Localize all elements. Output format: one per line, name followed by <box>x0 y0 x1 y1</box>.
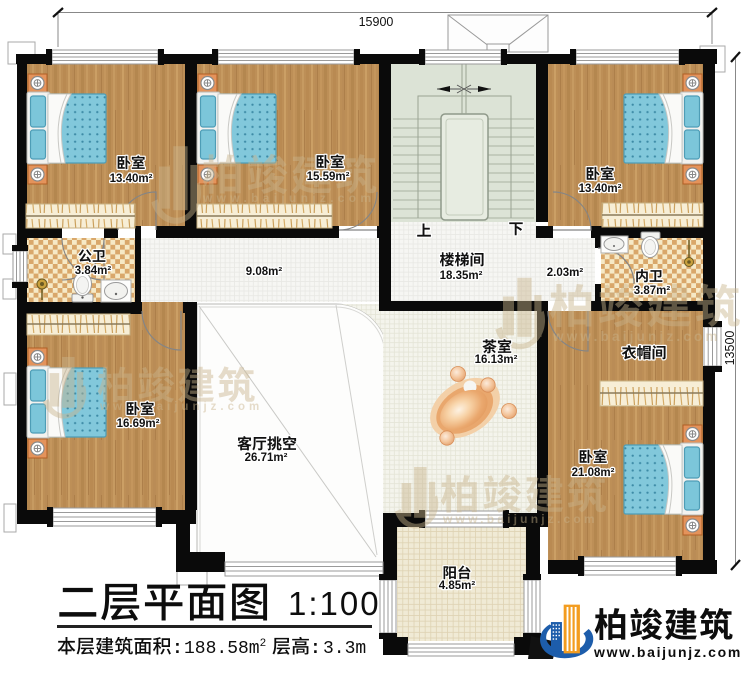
svg-text:21.08m²: 21.08m² <box>572 467 615 479</box>
svg-text:9.08m²: 9.08m² <box>246 266 283 278</box>
svg-text:26.71m²: 26.71m² <box>245 452 288 464</box>
svg-text:16.13m²: 16.13m² <box>475 354 518 366</box>
svg-text:15900: 15900 <box>359 15 394 29</box>
svg-text:www.baijunjz.com: www.baijunjz.com <box>99 401 263 413</box>
svg-text:www.baijunjz.com: www.baijunjz.com <box>202 191 375 205</box>
svg-text:15.59m²: 15.59m² <box>307 171 350 183</box>
svg-text:3.87m²: 3.87m² <box>634 285 671 297</box>
svg-text:1:100: 1:100 <box>288 585 381 622</box>
svg-text:13500: 13500 <box>723 331 737 366</box>
svg-text:2.03m²: 2.03m² <box>547 267 584 279</box>
svg-text:13.40m²: 13.40m² <box>110 173 153 185</box>
svg-text:13.40m²: 13.40m² <box>579 183 622 195</box>
svg-text::: : <box>310 639 321 659</box>
svg-text:3.3m: 3.3m <box>323 639 366 659</box>
svg-text:www.baijunjz.com: www.baijunjz.com <box>442 512 598 526</box>
svg-text:188.58m2: 188.58m2 <box>184 638 266 659</box>
svg-text:www.baijunjz.com: www.baijunjz.com <box>552 329 721 344</box>
svg-text:www.baijunjz.com: www.baijunjz.com <box>593 644 742 660</box>
svg-text:4.85m²: 4.85m² <box>439 580 476 592</box>
svg-text::: : <box>172 639 183 659</box>
svg-text:16.69m²: 16.69m² <box>117 418 160 430</box>
svg-text:18.35m²: 18.35m² <box>440 270 483 282</box>
svg-text:3.84m²: 3.84m² <box>75 265 112 277</box>
